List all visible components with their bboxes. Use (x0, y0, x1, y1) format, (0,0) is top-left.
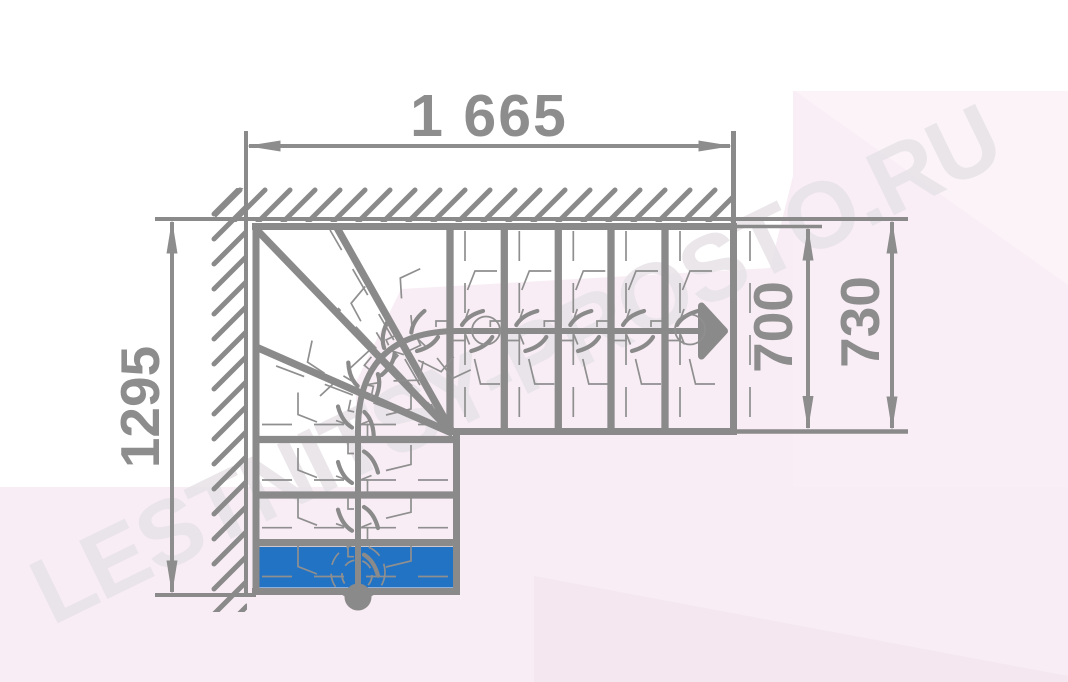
svg-text:1295: 1295 (109, 346, 171, 468)
svg-text:730: 730 (829, 276, 891, 368)
svg-text:700: 700 (742, 281, 804, 373)
svg-text:1 665: 1 665 (410, 83, 568, 149)
